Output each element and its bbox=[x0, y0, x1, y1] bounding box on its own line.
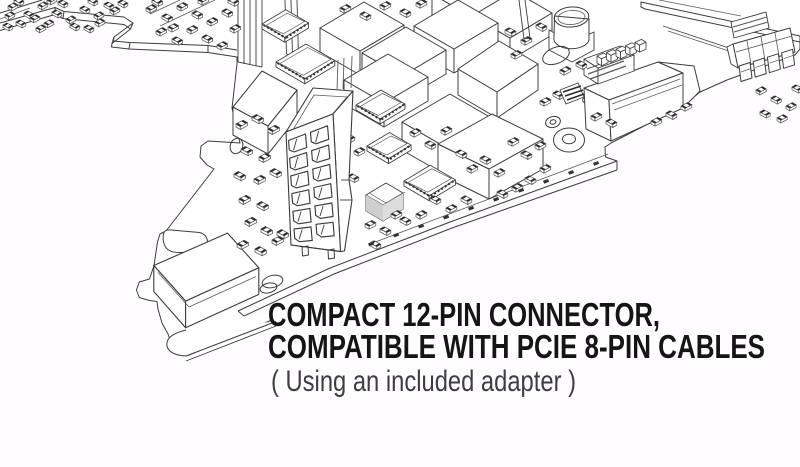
svg-text:( Using an included adapter ): ( Using an included adapter ) bbox=[271, 365, 576, 398]
svg-text:COMPATIBLE WITH PCIE 8-PIN CAB: COMPATIBLE WITH PCIE 8-PIN CABLES bbox=[268, 328, 765, 365]
